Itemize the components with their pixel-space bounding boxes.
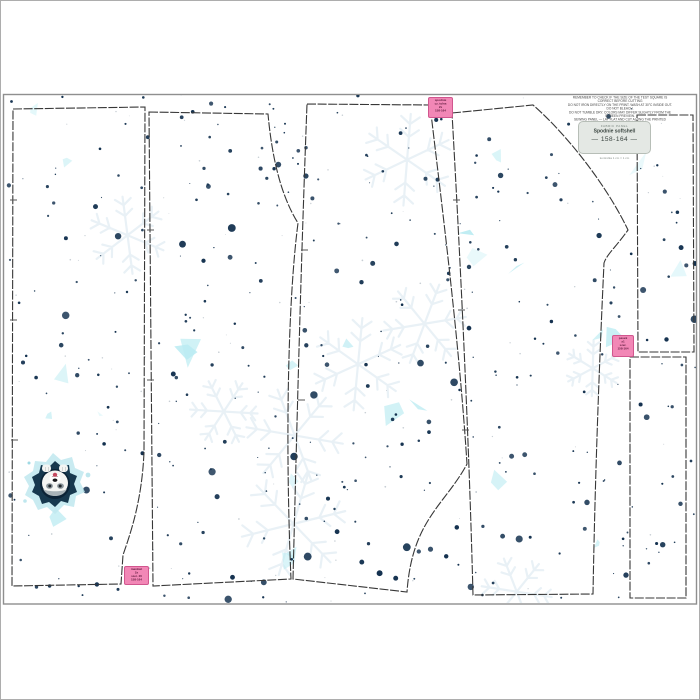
size-value: — 158-164 — <box>579 135 650 143</box>
piece-label-top: spodnie cz. tylna 2x 158-164 <box>428 97 453 118</box>
size-label: FABRIC PANEL Spodnie softshell — 158-164… <box>578 121 651 154</box>
splash-drop <box>86 473 91 478</box>
disclaimer-line: DO NOT TUMBLE DRY. COLORS MAY DIFFER SLI… <box>567 111 673 118</box>
splash-drop <box>23 499 27 503</box>
product-name: Spodnie softshell <box>579 129 650 135</box>
disclaimer-line: REMEMBER TO CHECK IF THE SIZE OF THE TES… <box>567 96 673 103</box>
fabric-panel-preview: { "page": { "background": "#ffffff", "fr… <box>0 0 700 700</box>
piece-label-line: 158-164 <box>429 110 452 114</box>
husky-nose <box>53 479 58 482</box>
disclaimer-line: DO NOT IRON DIRECTLY ON THE PRINT. WASH … <box>567 103 673 110</box>
husky-eye <box>48 485 51 488</box>
piece-label-bottom: mankiet 2x szer. 20 158-164 <box>124 566 149 585</box>
piece-label-right: pasek x1 szer. 158-164 <box>612 335 634 357</box>
size-label-note: kontrolka 1 cm = 1 cm <box>578 155 651 163</box>
piece-label-line: 158-164 <box>613 348 633 352</box>
husky-tongue <box>53 473 57 477</box>
piece-label-line: 158-164 <box>125 579 148 583</box>
splash-drop <box>28 462 31 465</box>
husky-eye <box>59 485 62 488</box>
